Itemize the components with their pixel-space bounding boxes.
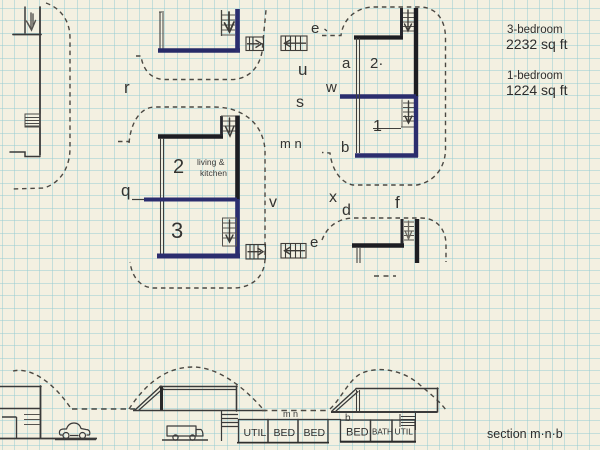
svg-text:w: w — [325, 79, 337, 96]
svg-text:1-bedroom: 1-bedroom — [507, 70, 563, 82]
svg-text:BED: BED — [346, 427, 369, 439]
svg-text:BED: BED — [304, 427, 326, 439]
svg-text:b: b — [341, 139, 349, 156]
svg-text:1224 sq ft: 1224 sq ft — [506, 82, 568, 98]
svg-text:v: v — [269, 194, 277, 211]
svg-text:r: r — [124, 78, 130, 97]
svg-text:d: d — [342, 202, 351, 219]
svg-text:x: x — [329, 189, 337, 206]
svg-text:2·: 2· — [370, 55, 383, 72]
svg-text:section m·n·b: section m·n·b — [487, 427, 563, 441]
svg-text:2232 sq ft: 2232 sq ft — [506, 36, 568, 52]
svg-text:2: 2 — [173, 156, 184, 178]
svg-text:q: q — [121, 181, 130, 200]
svg-text:UTIL: UTIL — [244, 427, 267, 439]
svg-text:3: 3 — [171, 218, 183, 243]
svg-text:e: e — [310, 234, 318, 251]
svg-text:s: s — [296, 94, 304, 111]
svg-text:f: f — [395, 193, 400, 212]
svg-text:b: b — [345, 413, 351, 424]
svg-text:a: a — [342, 55, 351, 72]
svg-text:u: u — [298, 60, 307, 79]
svg-text:BATH: BATH — [372, 428, 393, 437]
svg-text:1: 1 — [373, 118, 382, 135]
svg-text:kitchen: kitchen — [200, 168, 227, 178]
svg-text:3-bedroom: 3-bedroom — [507, 24, 563, 36]
svg-text:living &: living & — [197, 157, 225, 167]
svg-text:m n: m n — [280, 136, 302, 151]
svg-text:BED: BED — [274, 427, 296, 439]
svg-text:UTIL: UTIL — [395, 427, 414, 437]
svg-text:e: e — [311, 20, 319, 37]
